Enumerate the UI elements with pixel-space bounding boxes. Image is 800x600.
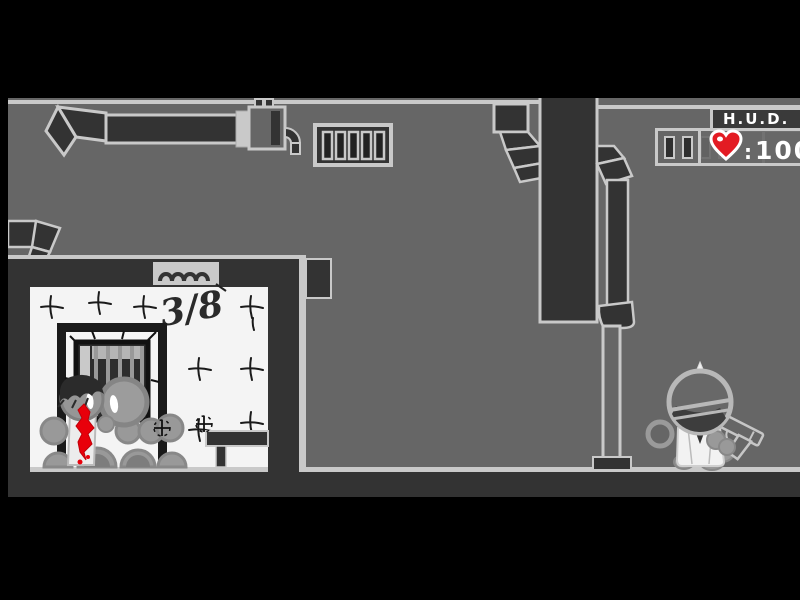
ceiling-lines (8, 100, 800, 109)
floor (8, 467, 800, 497)
wall-vent-grille-icon (315, 125, 391, 165)
top-border (0, 0, 800, 98)
ammo-slot (664, 136, 675, 159)
health-value: :100 (744, 138, 800, 165)
ceiling-duct (46, 99, 300, 155)
health-separator: : (744, 140, 754, 164)
player-character[interactable] (648, 362, 764, 470)
left-wall-duct-elbow (8, 221, 60, 259)
dark-pillar (494, 98, 597, 322)
left-border (0, 98, 8, 497)
game-viewport[interactable]: 3/8 (8, 98, 800, 497)
left-arm-ring (648, 422, 672, 446)
health-number: 100 (755, 136, 800, 165)
game-screenshot: 3/8 (0, 0, 800, 600)
bottom-border (0, 497, 800, 600)
ammo-slot (682, 136, 693, 159)
drain-pipe (593, 146, 634, 470)
heart-icon (708, 129, 744, 165)
